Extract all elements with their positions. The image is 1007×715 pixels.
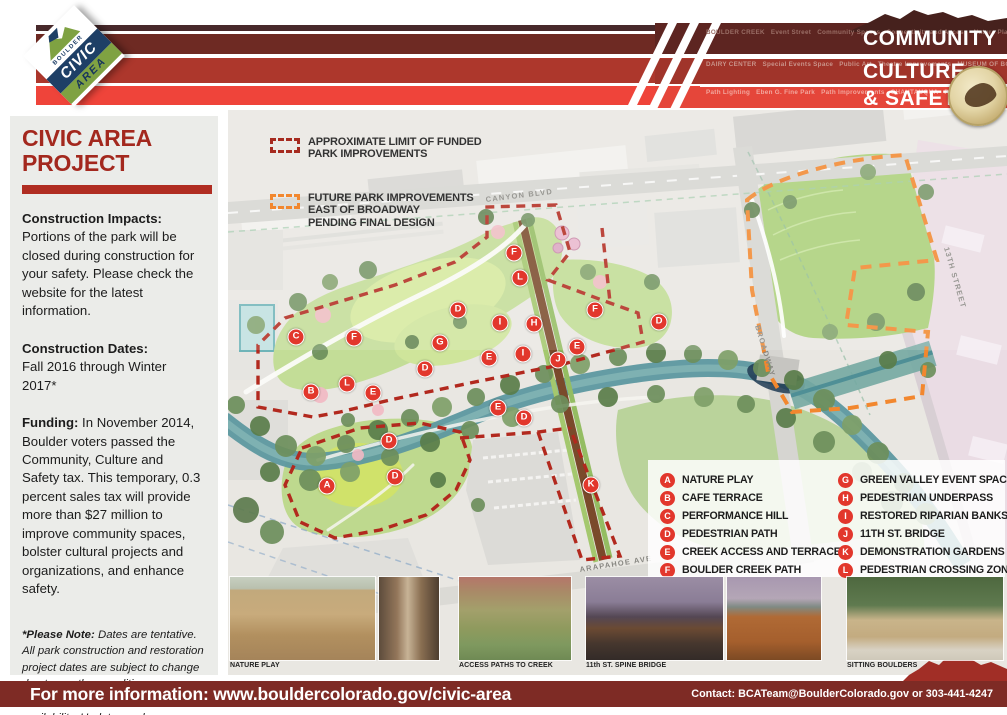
footer-bar: For more information: www.bouldercolorad… [0,681,1007,707]
key-badge-D: D [660,527,675,542]
key-badge-E: E [660,545,675,560]
program-item: Path Lighting [706,89,750,96]
header-stripe-4 [36,86,700,105]
map-marker-I: I [515,346,532,363]
map-marker-J: J [550,352,567,369]
photo-caption: SITTING BOULDERS [847,662,1003,669]
key-item-A: ANATURE PLAY [660,471,838,489]
map-marker-I: I [492,315,509,332]
map-marker-L: L [339,376,356,393]
map-marker-E: E [365,385,382,402]
photo-caption: ACCESS PATHS TO CREEK [459,662,571,669]
header-stripe-3 [36,58,700,83]
legend-future-label: FUTURE PARK IMPROVEMENTS EAST OF BROADWA… [308,192,474,229]
key-label: PEDESTRIAN PATH [682,528,778,540]
key-badge-H: H [838,491,853,506]
key-badge-I: I [838,509,853,524]
photo-spine-bridge-image [586,577,723,660]
key-item-D: DPEDESTRIAN PATH [660,525,838,543]
photo-access-paths-image [459,577,571,660]
map-marker-D: D [450,302,467,319]
photo-rope-bridge-image [379,577,439,660]
key-item-E: ECREEK ACCESS AND TERRACE [660,543,838,561]
legend-funded-label: APPROXIMATE LIMIT OF FUNDED PARK IMPROVE… [308,136,481,161]
construction-dates-lead: Construction Dates: [22,340,204,358]
poster-page: BOULDER CREEKEvent StreetCommunity Space… [0,0,1007,715]
funded-boundary-swatch-icon [270,138,300,153]
key-label: 11TH ST. BRIDGE [860,528,945,540]
please-note-lead: *Please Note: [22,629,95,641]
construction-impacts-paragraph: Construction Impacts: Portions of the pa… [22,210,204,321]
key-badge-J: J [838,527,853,542]
key-label: GREEN VALLEY EVENT SPACE [860,474,1007,486]
photo-caption: NATURE PLAY [230,662,375,669]
map-key-panel: ANATURE PLAYBCAFE TERRACECPERFORMANCE HI… [648,460,1005,577]
map-marker-B: B [303,384,320,401]
program-row-3: Path LightingEben G. Fine ParkPath Impro… [706,88,858,98]
key-label: PEDESTRIAN CROSSING ZONE [860,564,1007,576]
funding-text: In November 2014, Boulder voters passed … [22,415,200,596]
key-col-2: GGREEN VALLEY EVENT SPACEHPEDESTRIAN UND… [838,471,1007,577]
map-marker-G: G [432,335,449,352]
map-marker-E: E [490,400,507,417]
key-badge-C: C [660,509,675,524]
key-badge-A: A [660,473,675,488]
site-plan-map: CANYON BLVD BROADWAY 13TH STREET ARAPAHO… [228,110,1007,675]
program-item: BOULDER CREEK [706,29,765,36]
map-marker-F: F [587,302,604,319]
page-title-line1: CIVIC AREA [22,125,152,151]
map-marker-D: D [516,410,533,427]
key-label: CREEK ACCESS AND TERRACE [682,546,841,558]
photo-nature-play: NATURE PLAY [230,577,375,669]
program-item: DAIRY CENTER [706,61,756,68]
photo-sitting-boulders-image [847,577,1003,660]
key-label: CAFE TERRACE [682,492,763,504]
map-marker-E: E [569,339,586,356]
construction-impacts-lead: Construction Impacts: [22,211,162,226]
key-item-B: BCAFE TERRACE [660,489,838,507]
map-marker-D: D [387,469,404,486]
sidebar: CIVIC AREA PROJECT Construction Impacts:… [10,116,218,675]
key-label: PEDESTRIAN UNDERPASS [860,492,993,504]
header-title-community: COMMUNITY [863,28,997,49]
key-item-K: KDEMONSTRATION GARDENS [838,543,1007,561]
construction-impacts-text: Portions of the park will be closed duri… [22,229,194,318]
photo-access-paths: ACCESS PATHS TO CREEK [459,577,571,669]
key-label: DEMONSTRATION GARDENS [860,546,1005,558]
map-marker-F: F [506,245,523,262]
funding-lead: Funding: [22,415,78,430]
key-badge-K: K [838,545,853,560]
map-marker-E: E [481,350,498,367]
footer-contact-text: Contact: BCATeam@BoulderColorado.gov or … [691,681,993,707]
program-row-1: BOULDER CREEKEvent StreetCommunity Space… [706,28,858,38]
map-marker-F: F [346,330,363,347]
map-marker-A: A [319,478,336,495]
key-badge-L: L [838,563,853,578]
map-marker-C: C [288,329,305,346]
key-item-H: HPEDESTRIAN UNDERPASS [838,489,1007,507]
key-item-C: CPERFORMANCE HILL [660,507,838,525]
construction-dates-paragraph: Construction Dates:Fall 2016 through Win… [22,340,204,395]
page-title-line2: PROJECT [22,150,129,176]
key-item-I: IRESTORED RIPARIAN BANKS [838,507,1007,525]
program-item: Event Street [771,29,811,36]
key-label: BOULDER CREEK PATH [682,564,801,576]
title-underline-bar [22,185,212,194]
map-marker-H: H [526,316,543,333]
program-row-2: DAIRY CENTERSpecial Events SpacePublic A… [706,60,858,70]
header-stripe-1 [36,25,700,31]
key-col-1: ANATURE PLAYBCAFE TERRACECPERFORMANCE HI… [660,471,838,577]
photo-spine-bridge: 11th ST. SPINE BRIDGE [586,577,723,669]
map-marker-D: D [417,361,434,378]
key-badge-F: F [660,563,675,578]
photo-rope-bridge [379,577,439,660]
map-marker-L: L [512,270,529,287]
key-label: NATURE PLAY [682,474,753,486]
map-marker-K: K [583,477,600,494]
map-marker-D: D [651,314,668,331]
key-label: RESTORED RIPARIAN BANKS [860,510,1007,522]
header-stripe-2 [36,34,700,54]
photo-sitting-boulders: SITTING BOULDERS [847,577,1003,669]
legend-funded: APPROXIMATE LIMIT OF FUNDED PARK IMPROVE… [270,136,481,161]
photo-bridge-deck [727,577,821,660]
program-item: Special Events Space [762,61,833,68]
page-title: CIVIC AREA PROJECT [22,126,204,176]
header-title-culture: CULTURE [863,61,965,82]
key-item-J: J11TH ST. BRIDGE [838,525,1007,543]
program-item: Eben G. Fine Park [756,89,815,96]
footer-website-text: For more information: www.bouldercolorad… [30,681,511,707]
photo-nature-play-image [230,577,375,660]
construction-dates-text: Fall 2016 through Winter 2017* [22,359,166,392]
seal-emblem-icon [961,80,998,111]
key-badge-G: G [838,473,853,488]
map-marker-D: D [381,433,398,450]
photo-caption: 11th ST. SPINE BRIDGE [586,662,723,669]
key-label: PERFORMANCE HILL [682,510,788,522]
photo-bridge-deck-image [727,577,821,660]
legend-future: FUTURE PARK IMPROVEMENTS EAST OF BROADWA… [270,192,474,229]
future-boundary-swatch-icon [270,194,300,209]
boulder-city-seal [948,66,1007,126]
funding-paragraph: Funding: In November 2014, Boulder voter… [22,414,204,599]
key-badge-B: B [660,491,675,506]
key-item-G: GGREEN VALLEY EVENT SPACE [838,471,1007,489]
